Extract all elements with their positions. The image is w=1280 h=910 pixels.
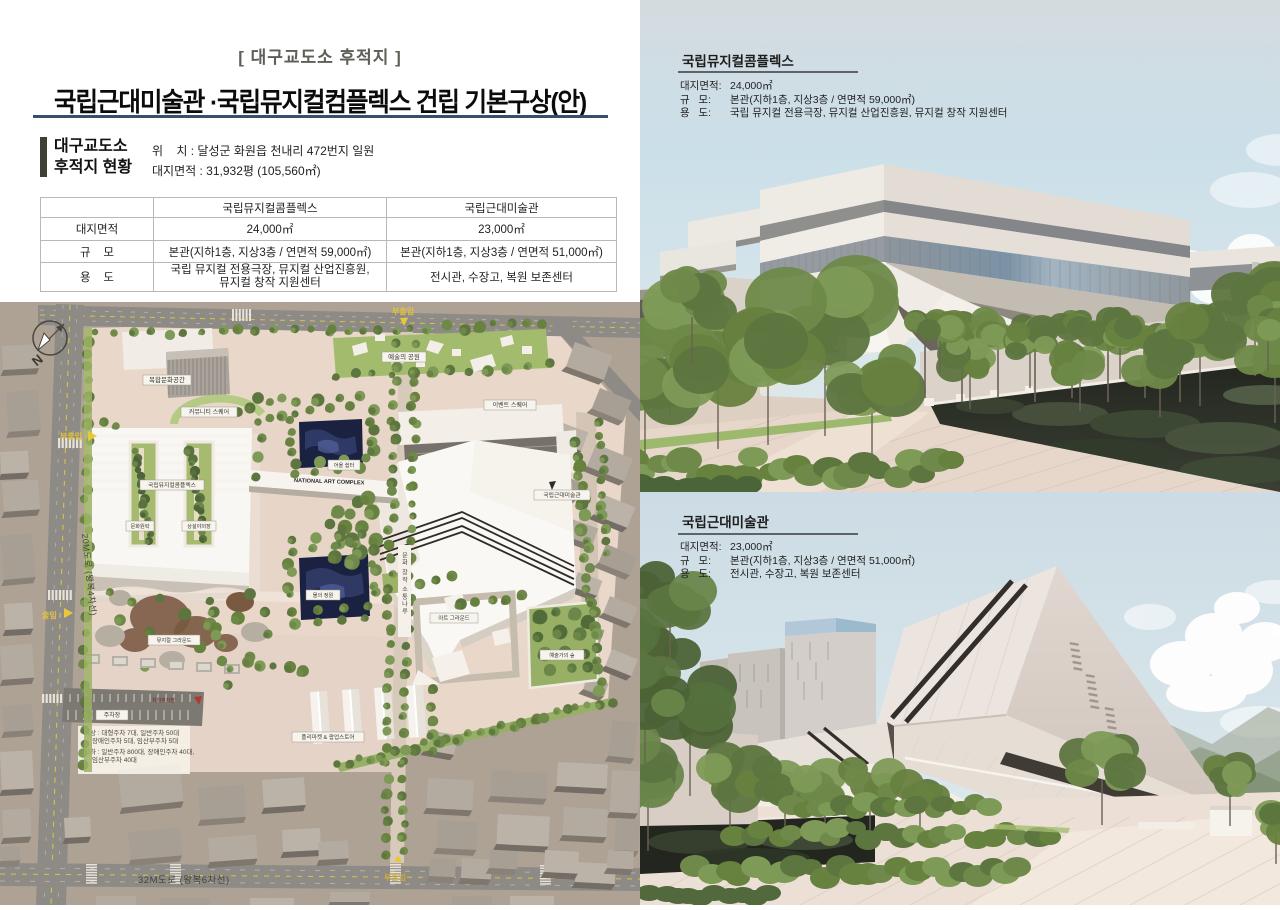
- svg-text:국립근대미술관: 국립근대미술관: [543, 491, 581, 499]
- svg-text:23,000㎡: 23,000㎡: [730, 541, 773, 553]
- svg-text:국립 뮤지컬 전용극장, 뮤지컬 산업진흥원, 뮤지컬 창작: 국립 뮤지컬 전용극장, 뮤지컬 산업진흥원, 뮤지컬 창작 지원센터: [730, 106, 1007, 119]
- svg-text:문화원락: 문화원락: [130, 522, 149, 530]
- svg-text:커뮤니티 스퀘어: 커뮤니티 스퀘어: [189, 408, 229, 416]
- svg-text:물의 정원: 물의 정원: [313, 591, 334, 599]
- svg-text:규 모:: 규 모:: [680, 555, 711, 567]
- svg-text:규 모:: 규 모:: [680, 94, 711, 106]
- svg-text:출입: 출입: [42, 610, 57, 620]
- svg-text:용 도:: 용 도:: [680, 568, 711, 580]
- svg-text:부출입: 부출입: [384, 872, 406, 882]
- svg-text:부출입: 부출입: [60, 431, 82, 441]
- svg-text:플리마켓 & 팝업스토어: 플리마켓 & 팝업스토어: [301, 733, 354, 741]
- svg-text:본관(지하1층, 지상3층 / 연면적 51,000㎡): 본관(지하1층, 지상3층 / 연면적 51,000㎡): [730, 554, 915, 567]
- svg-text:지하 : 일반주차 800대, 장애인주차 40대,: 지하 : 일반주차 800대, 장애인주차 40대,: [84, 747, 194, 756]
- svg-text:국립근대미술관: 국립근대미술관: [682, 514, 770, 530]
- svg-text:24,000㎡: 24,000㎡: [730, 80, 773, 92]
- svg-text:어울 쉼터: 어울 쉼터: [334, 461, 355, 469]
- svg-text:임산부주차 40대: 임산부주차 40대: [92, 755, 137, 764]
- svg-text:뮤지컬 그라운드: 뮤지컬 그라운드: [157, 636, 192, 644]
- svg-text:아트 그라운드: 아트 그라운드: [438, 614, 469, 622]
- svg-text:예술가의 숲: 예술가의 숲: [549, 651, 575, 659]
- svg-text:복합문화공간: 복합문화공간: [149, 375, 185, 384]
- svg-text:장애인주차 5대, 임산부주차 5대: 장애인주차 5대, 임산부주차 5대: [92, 736, 178, 745]
- svg-text:전시관, 수장고, 복원 보존센터: 전시관, 수장고, 복원 보존센터: [730, 568, 861, 580]
- svg-text:국립뮤지컬콤플렉스: 국립뮤지컬콤플렉스: [682, 53, 794, 69]
- svg-text:지하주차장: 지하주차장: [152, 697, 175, 704]
- svg-text:32M도로 (왕복6차선): 32M도로 (왕복6차선): [138, 874, 230, 886]
- svg-text:주차장: 주차장: [104, 711, 121, 719]
- svg-text:이벤트 스퀘어: 이벤트 스퀘어: [493, 401, 528, 409]
- svg-text:본관(지하1층, 지상3층 / 연면적 59,000㎡): 본관(지하1층, 지상3층 / 연면적 59,000㎡): [730, 93, 915, 106]
- svg-text:국립뮤지컬콤플렉스: 국립뮤지컬콤플렉스: [148, 481, 197, 489]
- svg-text:대지면적:: 대지면적:: [680, 80, 722, 92]
- svg-text:대지면적:: 대지면적:: [680, 541, 722, 553]
- svg-text:상설야외장: 상설야외장: [187, 522, 211, 530]
- svg-text:용 도:: 용 도:: [680, 107, 711, 119]
- svg-text:예술의 공원: 예술의 공원: [388, 352, 420, 361]
- svg-text:문화 창작 소통나루: 문화 창작 소통나루: [401, 552, 408, 615]
- svg-text:부출입: 부출입: [392, 306, 414, 316]
- svg-text:지상 : 대형주차 7대, 일반주차 50대: 지상 : 대형주차 7대, 일반주차 50대: [84, 728, 179, 737]
